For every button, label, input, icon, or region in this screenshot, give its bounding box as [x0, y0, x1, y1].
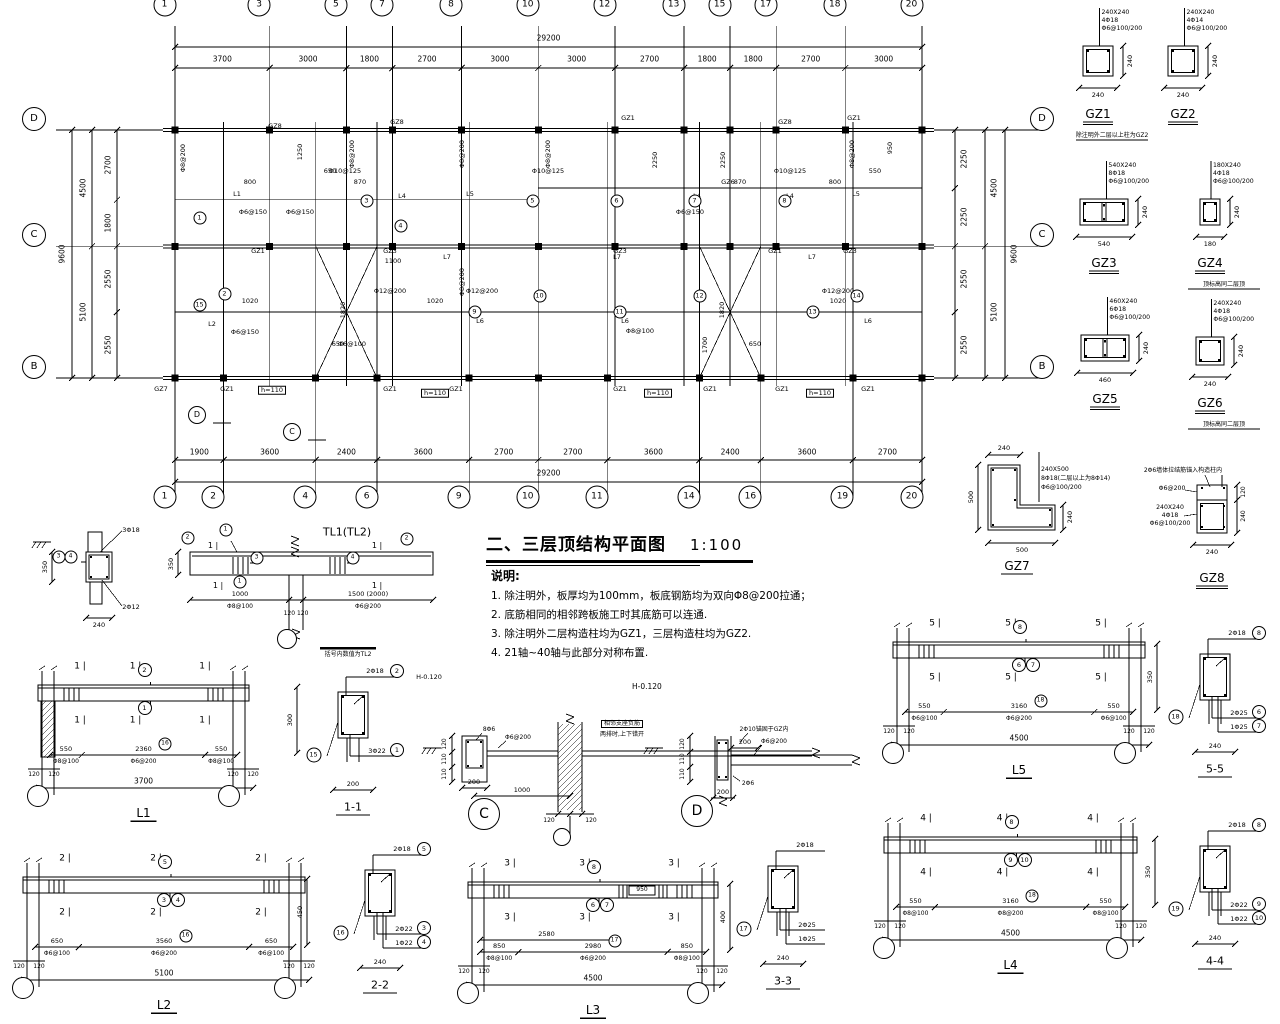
callout-number: 1	[219, 523, 232, 536]
dim-label: 1 |	[213, 582, 223, 590]
plan-annotation: L7	[808, 254, 816, 261]
callout-number: 7	[1252, 719, 1266, 733]
axis-bubble: 16	[739, 485, 762, 508]
callout-number: 8	[1252, 626, 1266, 640]
dim-label: 350	[1147, 671, 1154, 683]
plan-annotation: Φ6@150	[239, 209, 267, 216]
plan-annotation: L6	[476, 318, 484, 325]
rebar-spec: Φ6@100/200	[1213, 179, 1254, 185]
plan-annotation: Φ6@150	[231, 329, 259, 336]
plan-annotation: Φ8@200	[459, 140, 466, 168]
callout-number: 18	[1026, 889, 1039, 902]
panel-number: 10	[533, 289, 546, 302]
rebar-spec: Φ6@100/200	[1109, 315, 1150, 321]
axis-bubble	[274, 977, 296, 999]
plan-annotation: 2250	[652, 152, 659, 169]
dim-label: 120	[458, 969, 469, 975]
dim-label: 350	[42, 561, 49, 573]
rebar-note: 1Φ22	[1230, 916, 1248, 923]
plan-annotation: 1020	[242, 298, 259, 305]
dim-label: 200	[468, 779, 480, 786]
dim-label: 3560	[156, 938, 173, 945]
rebar-spec: 240X240	[1187, 10, 1215, 16]
dim-label: 2980	[585, 943, 602, 950]
detail-note: 顶标高同二层顶	[1203, 422, 1245, 428]
plan-annotation: L7	[613, 254, 621, 261]
detail-label: GZ8	[1199, 572, 1224, 584]
plan-annotation: GZ1	[613, 386, 627, 393]
panel-number: 7	[688, 194, 701, 207]
dim-label: 1 |	[74, 663, 86, 672]
dim-label: 5 |	[929, 620, 941, 629]
callout-number: 8	[1013, 620, 1027, 634]
callout-number: 4	[417, 935, 431, 949]
plan-annotation: GZ1	[621, 115, 635, 122]
dim-label: 4 |	[920, 869, 932, 878]
dim-label: Φ6@200	[580, 956, 606, 962]
plan-annotation: GZ3	[843, 248, 857, 255]
plan-annotation: 1100	[385, 258, 402, 265]
axis-bubble: D	[1030, 107, 1054, 131]
dim-label: 29200	[537, 34, 561, 42]
dim-label: 1 |	[208, 542, 218, 550]
plan-annotation: L6	[621, 318, 629, 325]
rebar-note: 2Φ10锚固于GZ内	[740, 727, 789, 733]
plan-annotation: L5	[852, 191, 860, 198]
dim-label: 540	[1098, 241, 1110, 248]
dim-label: 3000	[874, 55, 893, 63]
dim-label: 1800	[698, 55, 717, 63]
dim-label: 120	[283, 964, 294, 970]
dim-label: 120	[227, 772, 238, 778]
dim-label: 1500 (2000)	[348, 591, 388, 598]
callout-number: 10	[1252, 911, 1266, 925]
dim-label: 1900	[190, 448, 209, 456]
axis-bubble	[12, 977, 34, 999]
rebar-note: 8Φ6	[483, 727, 495, 733]
detail-label: GZ2	[1170, 108, 1195, 120]
dim-label: 4500	[990, 179, 998, 198]
dim-label: 4500	[79, 179, 87, 198]
panel-number: 15	[193, 298, 206, 311]
dim-label: 350	[168, 558, 175, 570]
callout-number: 8	[587, 860, 601, 874]
callout-number: 15	[306, 747, 321, 762]
rebar-note: 2Φ12	[122, 604, 140, 611]
rebar-spec: Φ6@100/200	[1187, 26, 1228, 32]
dim-label: 850	[681, 943, 693, 950]
dim-label: 120	[48, 772, 59, 778]
panel-number: 1	[193, 211, 206, 224]
dim-label: 2 |	[150, 909, 162, 918]
plan-annotation: 2250	[720, 152, 727, 169]
dim-label: 120	[478, 969, 489, 975]
dim-label: 2360	[135, 746, 152, 753]
rebar-note: Φ6@200	[505, 735, 531, 741]
rebar-spec: 240X240	[1102, 10, 1130, 16]
rebar-note: 2Φ18	[366, 668, 384, 675]
panel-number: 8	[778, 194, 791, 207]
callout-number: 2	[390, 664, 404, 678]
dim-label: Φ6@100	[911, 716, 937, 722]
callout-number: 4	[171, 893, 185, 907]
dim-label: 120	[696, 969, 707, 975]
dim-label: 120	[1135, 924, 1146, 930]
section-cut-bubble: C	[283, 423, 301, 441]
callout-number: 16	[179, 929, 192, 942]
axis-bubble	[1106, 937, 1128, 959]
detail-note: 顶标高同二层顶	[1203, 282, 1245, 288]
dim-label: 4 |	[997, 869, 1009, 878]
dim-label: 3600	[644, 448, 663, 456]
rebar-spec: 460X240	[1109, 299, 1137, 305]
dim-label: 2700	[640, 55, 659, 63]
plan-annotation: GZ1	[703, 386, 717, 393]
dim-label: 240	[1204, 381, 1216, 388]
rebar-spec: Φ6@100/200	[1108, 179, 1149, 185]
callout-number: 8	[1252, 818, 1266, 832]
dim-label: Φ8@100	[53, 759, 79, 765]
drawing-title: 二、三层顶结构平面图	[486, 530, 666, 555]
callout-number: 10	[1018, 853, 1032, 867]
plan-annotation: 1820	[340, 302, 347, 319]
dim-label: 240	[1142, 206, 1149, 218]
axis-bubble: 10	[516, 485, 539, 508]
note-line: 4. 21轴~40轴与此部分对称布置.	[491, 645, 891, 660]
plan-annotation: Φ12@200	[466, 288, 498, 295]
dim-label: 2550	[960, 336, 968, 355]
plan-annotation: 950	[887, 142, 894, 154]
dim-label: 240	[1067, 511, 1074, 523]
dim-label: 400	[720, 911, 727, 923]
dim-label: 5100	[154, 969, 173, 977]
dim-label: 5 |	[1095, 674, 1107, 683]
callout-number: 17	[736, 921, 751, 936]
detail-bubble: C	[468, 798, 500, 830]
dim-label: 3000	[490, 55, 509, 63]
dim-label: 240	[1234, 206, 1241, 218]
rebar-spec: 4Φ18	[1102, 18, 1119, 24]
plan-annotation: Φ8@200	[180, 144, 187, 172]
dim-label: 2400	[721, 448, 740, 456]
dim-label: 110	[680, 768, 686, 779]
dim-label: 120	[716, 969, 727, 975]
dim-label: 240	[1238, 345, 1245, 357]
plan-annotation: GZ1	[251, 248, 265, 255]
panel-number: 11	[613, 305, 626, 318]
dim-label: Φ6@200	[131, 759, 157, 765]
dim-label: 550	[1107, 703, 1119, 710]
dim-label: 2700	[878, 448, 897, 456]
dim-label: 550	[918, 703, 930, 710]
dim-label: 120	[1123, 729, 1134, 735]
rebar-note: 2Φ18	[393, 846, 411, 853]
drawing-scale: 1:100	[690, 536, 743, 554]
rebar-note: 2Φ6	[742, 781, 754, 787]
dim-label: 3700	[213, 55, 232, 63]
dim-label: 3600	[797, 448, 816, 456]
dim-label: 300	[287, 714, 294, 726]
detail-bubble: D	[681, 795, 713, 827]
plan-annotation: 800	[244, 179, 256, 186]
dim-label: 240	[777, 955, 789, 962]
plan-annotation: 1250	[297, 144, 304, 161]
plan-annotation: 1700	[702, 337, 709, 354]
rebar-note: 1Φ25	[1230, 724, 1248, 731]
dim-label: 550	[909, 898, 921, 905]
rebar-spec: 4Φ18	[1162, 513, 1179, 519]
rebar-note: Φ6@200	[761, 739, 787, 745]
callout-number: 1	[390, 743, 404, 757]
callout-number: 19	[1168, 901, 1183, 916]
detail-label: L4	[1003, 959, 1017, 971]
panel-number: 9	[468, 305, 481, 318]
note-line: 1. 除注明外，板厚均为100mm，板底钢筋均为双向Φ8@200拉通；	[491, 588, 891, 603]
callout-number: 1	[233, 575, 246, 588]
dim-label: 650	[265, 938, 277, 945]
callout-number: 2	[400, 532, 413, 545]
dim-label: Φ8@100	[1093, 911, 1119, 917]
dim-label: 1800	[360, 55, 379, 63]
dim-label: 350	[1145, 866, 1152, 878]
rebar-spec: Φ6@100/200	[1041, 485, 1082, 491]
note-line: 2. 底筋相同的相邻跨板施工时其底筋可以连通.	[491, 607, 891, 622]
plan-annotation: 1020	[427, 298, 444, 305]
detail-label: 3-3	[774, 976, 792, 987]
dim-label: 2700	[104, 155, 112, 174]
dim-label: 2550	[960, 270, 968, 289]
plan-annotation: Φ6@150	[286, 209, 314, 216]
dim-label: 500	[968, 491, 975, 503]
dim-label: 4 |	[1087, 815, 1099, 824]
plan-annotation: GZ8	[268, 123, 282, 130]
axis-bubble: 4	[294, 485, 317, 508]
plan-annotation: L7	[443, 254, 451, 261]
panel-number: 12	[693, 289, 706, 302]
plan-annotation: L6	[864, 318, 872, 325]
dim-label: 29200	[537, 469, 561, 477]
plan-annotation: h=110	[259, 387, 285, 394]
plan-annotation: 650	[324, 168, 336, 175]
plan-annotation: 800	[829, 179, 841, 186]
dim-label: Φ8@100	[674, 956, 700, 962]
callout-number: 16	[333, 925, 348, 940]
axis-bubble	[457, 982, 479, 1004]
detail-label: 5-5	[1206, 764, 1224, 775]
rebar-spec: 6Φ18	[1109, 307, 1126, 313]
axis-bubble	[553, 828, 571, 846]
axis-bubble: 6	[355, 485, 378, 508]
plan-annotation: 650	[332, 341, 344, 348]
dim-label: 2 |	[59, 909, 71, 918]
plan-annotation: L1	[233, 191, 241, 198]
rebar-note: 2Φ25	[1230, 710, 1248, 717]
dim-label: 120	[1143, 729, 1154, 735]
axis-bubble: 20	[900, 485, 923, 508]
dim-label: 1800	[744, 55, 763, 63]
dim-label: 200	[347, 781, 359, 788]
detail-label: GZ3	[1091, 257, 1116, 269]
dim-label: 9600	[58, 244, 66, 263]
dim-label: 120	[874, 924, 885, 930]
plan-annotation: 1820	[719, 302, 726, 319]
dim-label: 5 |	[1005, 674, 1017, 683]
detail-label: GZ7	[1004, 560, 1029, 572]
axis-bubble: B	[22, 355, 46, 379]
dim-label: 200	[739, 739, 751, 746]
dim-label: 2700	[563, 448, 582, 456]
callout-number: 18	[1034, 694, 1047, 707]
rebar-spec: 4Φ14	[1187, 18, 1204, 24]
dim-label: 550	[1099, 898, 1111, 905]
detail-label: 4-4	[1206, 956, 1224, 967]
plan-annotation: L4	[398, 193, 406, 200]
dim-label: 650	[51, 938, 63, 945]
rebar-note: 1Φ22	[395, 940, 413, 947]
dim-label: 240	[1241, 510, 1247, 521]
dim-label: 3 |	[579, 914, 591, 923]
dim-label: 5 |	[929, 674, 941, 683]
callout-number: 3	[157, 893, 171, 907]
callout-number: 7	[1026, 658, 1040, 672]
dim-label: 3 |	[504, 914, 516, 923]
dim-label: 120	[1241, 486, 1247, 497]
axis-bubble: D	[22, 107, 46, 131]
plan-annotation: GZ1	[847, 115, 861, 122]
rebar-spec: 240X240	[1213, 301, 1241, 307]
dim-label: 240	[1212, 55, 1219, 67]
dim-label: 180	[1204, 241, 1216, 248]
dim-label: 500	[1016, 547, 1028, 554]
panel-number: 14	[850, 289, 863, 302]
callout-number: 7	[600, 898, 614, 912]
callout-number: 8	[1005, 815, 1019, 829]
rebar-note: 2Φ18	[796, 842, 814, 849]
dim-label: 240	[374, 959, 386, 966]
detail-label: L2	[157, 999, 171, 1011]
plan-annotation: GZ7	[154, 386, 168, 393]
dim-label: 120	[247, 772, 258, 778]
rebar-spec: 4Φ18	[1213, 309, 1230, 315]
plan-annotation: GZ1	[220, 386, 234, 393]
rebar-spec: 8Φ18(二层以上为8Φ14)	[1041, 476, 1110, 482]
dim-label: 240	[1209, 935, 1221, 942]
dim-label: 120	[303, 964, 314, 970]
dim-label: 120	[442, 738, 448, 749]
dim-label: 1800	[104, 213, 112, 232]
detail-label: GZ1	[1085, 108, 1110, 120]
callout-number: 5	[417, 842, 431, 856]
axis-bubble: 2	[202, 485, 225, 508]
panel-number: 4	[394, 219, 407, 232]
dim-label: 3160	[1002, 898, 1019, 905]
plan-annotation: GZ8	[390, 119, 404, 126]
dim-label: 120	[585, 818, 596, 824]
detail-label: L1	[136, 807, 150, 819]
dim-label: 550	[215, 746, 227, 753]
rebar-spec: 540X240	[1108, 163, 1136, 169]
dim-label: 3 |	[668, 860, 680, 869]
dim-label: 4500	[1001, 929, 1020, 937]
plan-annotation: 870	[354, 179, 366, 186]
rebar-spec: 240X500	[1041, 467, 1069, 473]
rebar-spec: Φ6@100/200	[1150, 521, 1191, 527]
dim-label: 120	[28, 772, 39, 778]
dim-label: 2700	[494, 448, 513, 456]
dim-label: 240	[1206, 549, 1218, 556]
detail-label: 2-2	[371, 980, 389, 991]
rebar-spec: 4Φ18	[1213, 171, 1230, 177]
plan-annotation: L2	[208, 321, 216, 328]
detail-label: GZ4	[1197, 257, 1222, 269]
axis-bubble: 9	[447, 485, 470, 508]
dim-label: 3600	[414, 448, 433, 456]
plan-annotation: h=110	[645, 390, 671, 397]
elevation-note: H-0.120	[632, 682, 662, 691]
dim-label: Φ8@200	[998, 911, 1024, 917]
detail-note: 相邻支座负筋	[602, 721, 642, 727]
rebar-spec: 180X240	[1213, 163, 1241, 169]
dim-label: 4500	[1009, 734, 1028, 742]
rebar-note: 3Φ22	[368, 748, 386, 755]
detail-label: L3	[586, 1004, 600, 1016]
dim-label: Φ6@100	[44, 951, 70, 957]
plan-annotation: Φ6@150	[676, 209, 704, 216]
rebar-spec: 8Φ18	[1108, 171, 1125, 177]
dim-label: 2250	[960, 208, 968, 227]
dim-label: 240	[1143, 342, 1150, 354]
plan-annotation: 1020	[830, 298, 847, 305]
dim-label: 120	[883, 729, 894, 735]
dim-label: 460	[1099, 377, 1111, 384]
dim-label: 200	[717, 789, 729, 796]
axis-bubble	[218, 785, 240, 807]
axis-bubble	[277, 629, 297, 649]
detail-note: H-0.120	[416, 674, 442, 681]
dim-label: Φ6@200	[1006, 716, 1032, 722]
dim-label: 120	[894, 924, 905, 930]
axis-bubble	[1114, 742, 1136, 764]
detail-label: 1-1	[344, 802, 362, 813]
dim-label: Φ6@200	[151, 951, 177, 957]
dim-label: Φ8@100	[227, 604, 253, 610]
plan-annotation: Φ12@200	[374, 288, 406, 295]
dim-label: 2550	[104, 336, 112, 355]
dim-label: 240	[93, 622, 105, 629]
callout-number: 9	[1252, 897, 1266, 911]
dim-label: 1 |	[372, 542, 382, 550]
callout-number: 16	[159, 737, 172, 750]
structural-drawing-canvas: 2920037003000180027003000300027001800180…	[0, 0, 1280, 1024]
detail-label: TL1(TL2)	[323, 527, 371, 538]
rebar-note: 2Φ25	[798, 922, 816, 929]
plan-annotation: GZ1	[449, 386, 463, 393]
axis-bubble: 1	[153, 485, 176, 508]
detail-note: 括号内数值为TL2	[325, 652, 372, 658]
dim-label: 2580	[538, 931, 555, 938]
dim-label: 1 |	[199, 717, 211, 726]
callout-number: 17	[608, 934, 621, 947]
dim-label: 120	[903, 729, 914, 735]
dim-label: 1 |	[74, 717, 86, 726]
dim-label: 120	[33, 964, 44, 970]
dim-label: 120	[543, 818, 554, 824]
rebar-note: 2Φ22	[395, 926, 413, 933]
rebar-note: 2Φ18	[1228, 822, 1246, 829]
rebar-spec: Φ6@100/200	[1213, 317, 1254, 323]
rebar-note: 3Φ18	[122, 527, 140, 534]
callout-number: 5	[158, 855, 172, 869]
